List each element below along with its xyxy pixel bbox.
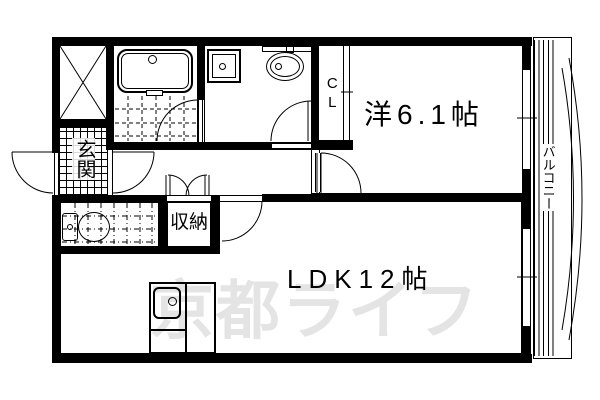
wall-toilet-top bbox=[60, 195, 158, 203]
closet-label: CL bbox=[324, 75, 340, 113]
ldk-window bbox=[522, 229, 531, 326]
room-corridor bbox=[112, 149, 312, 196]
wall-right-c bbox=[522, 325, 531, 363]
wall-top bbox=[52, 37, 532, 46]
wall-bath-bottom bbox=[106, 142, 272, 150]
storage-label: 収納 bbox=[167, 213, 211, 233]
entrance-label: 玄関 bbox=[72, 138, 95, 180]
western-window bbox=[522, 70, 531, 169]
ldk-label: LDK12帖 bbox=[287, 266, 435, 293]
kitchen-sink-icon bbox=[153, 287, 181, 319]
wall-cl-column bbox=[311, 37, 319, 142]
wall-bath-divider bbox=[197, 44, 204, 100]
wall-toilet-storage-bottom bbox=[52, 246, 220, 254]
wall-left-upper bbox=[52, 37, 60, 153]
closet-sliding-door bbox=[343, 46, 350, 140]
front-door-threshold bbox=[54, 153, 59, 195]
toilet-tank-button bbox=[67, 224, 73, 230]
wash-basin-drain bbox=[275, 63, 282, 70]
kitchen-counter-divider-h bbox=[149, 329, 186, 331]
ldk-door-threshold bbox=[220, 195, 262, 202]
bathtub-drain bbox=[148, 55, 157, 64]
floorplan-canvas: 京都ライフ bbox=[0, 0, 600, 400]
washroom-door-threshold bbox=[272, 143, 311, 149]
wall-bottom bbox=[52, 354, 532, 363]
wash-basin-faucet bbox=[286, 46, 294, 53]
wall-right-a bbox=[522, 37, 531, 72]
western-door-threshold bbox=[315, 153, 321, 192]
wall-right-b bbox=[522, 168, 531, 230]
wall-xbox-bottom bbox=[58, 119, 108, 127]
wall-entrance-right bbox=[106, 37, 114, 150]
kitchen-counter-divider-v bbox=[185, 282, 187, 354]
washing-machine-drain bbox=[219, 63, 226, 70]
wall-left-lower bbox=[52, 195, 60, 363]
kitchen-faucet bbox=[168, 297, 177, 306]
front-door-arc bbox=[12, 152, 53, 193]
xbox-shaft bbox=[58, 44, 108, 121]
wall-cl-bottom bbox=[311, 140, 353, 150]
wall-western-bottom bbox=[311, 193, 522, 201]
toilet-bowl-icon bbox=[78, 212, 110, 242]
bath-door-threshold bbox=[198, 100, 203, 142]
balcony-label: バルコニー bbox=[541, 144, 555, 211]
western-room-label: 洋6.1帖 bbox=[364, 100, 484, 129]
bathtub-ledge bbox=[146, 90, 163, 96]
